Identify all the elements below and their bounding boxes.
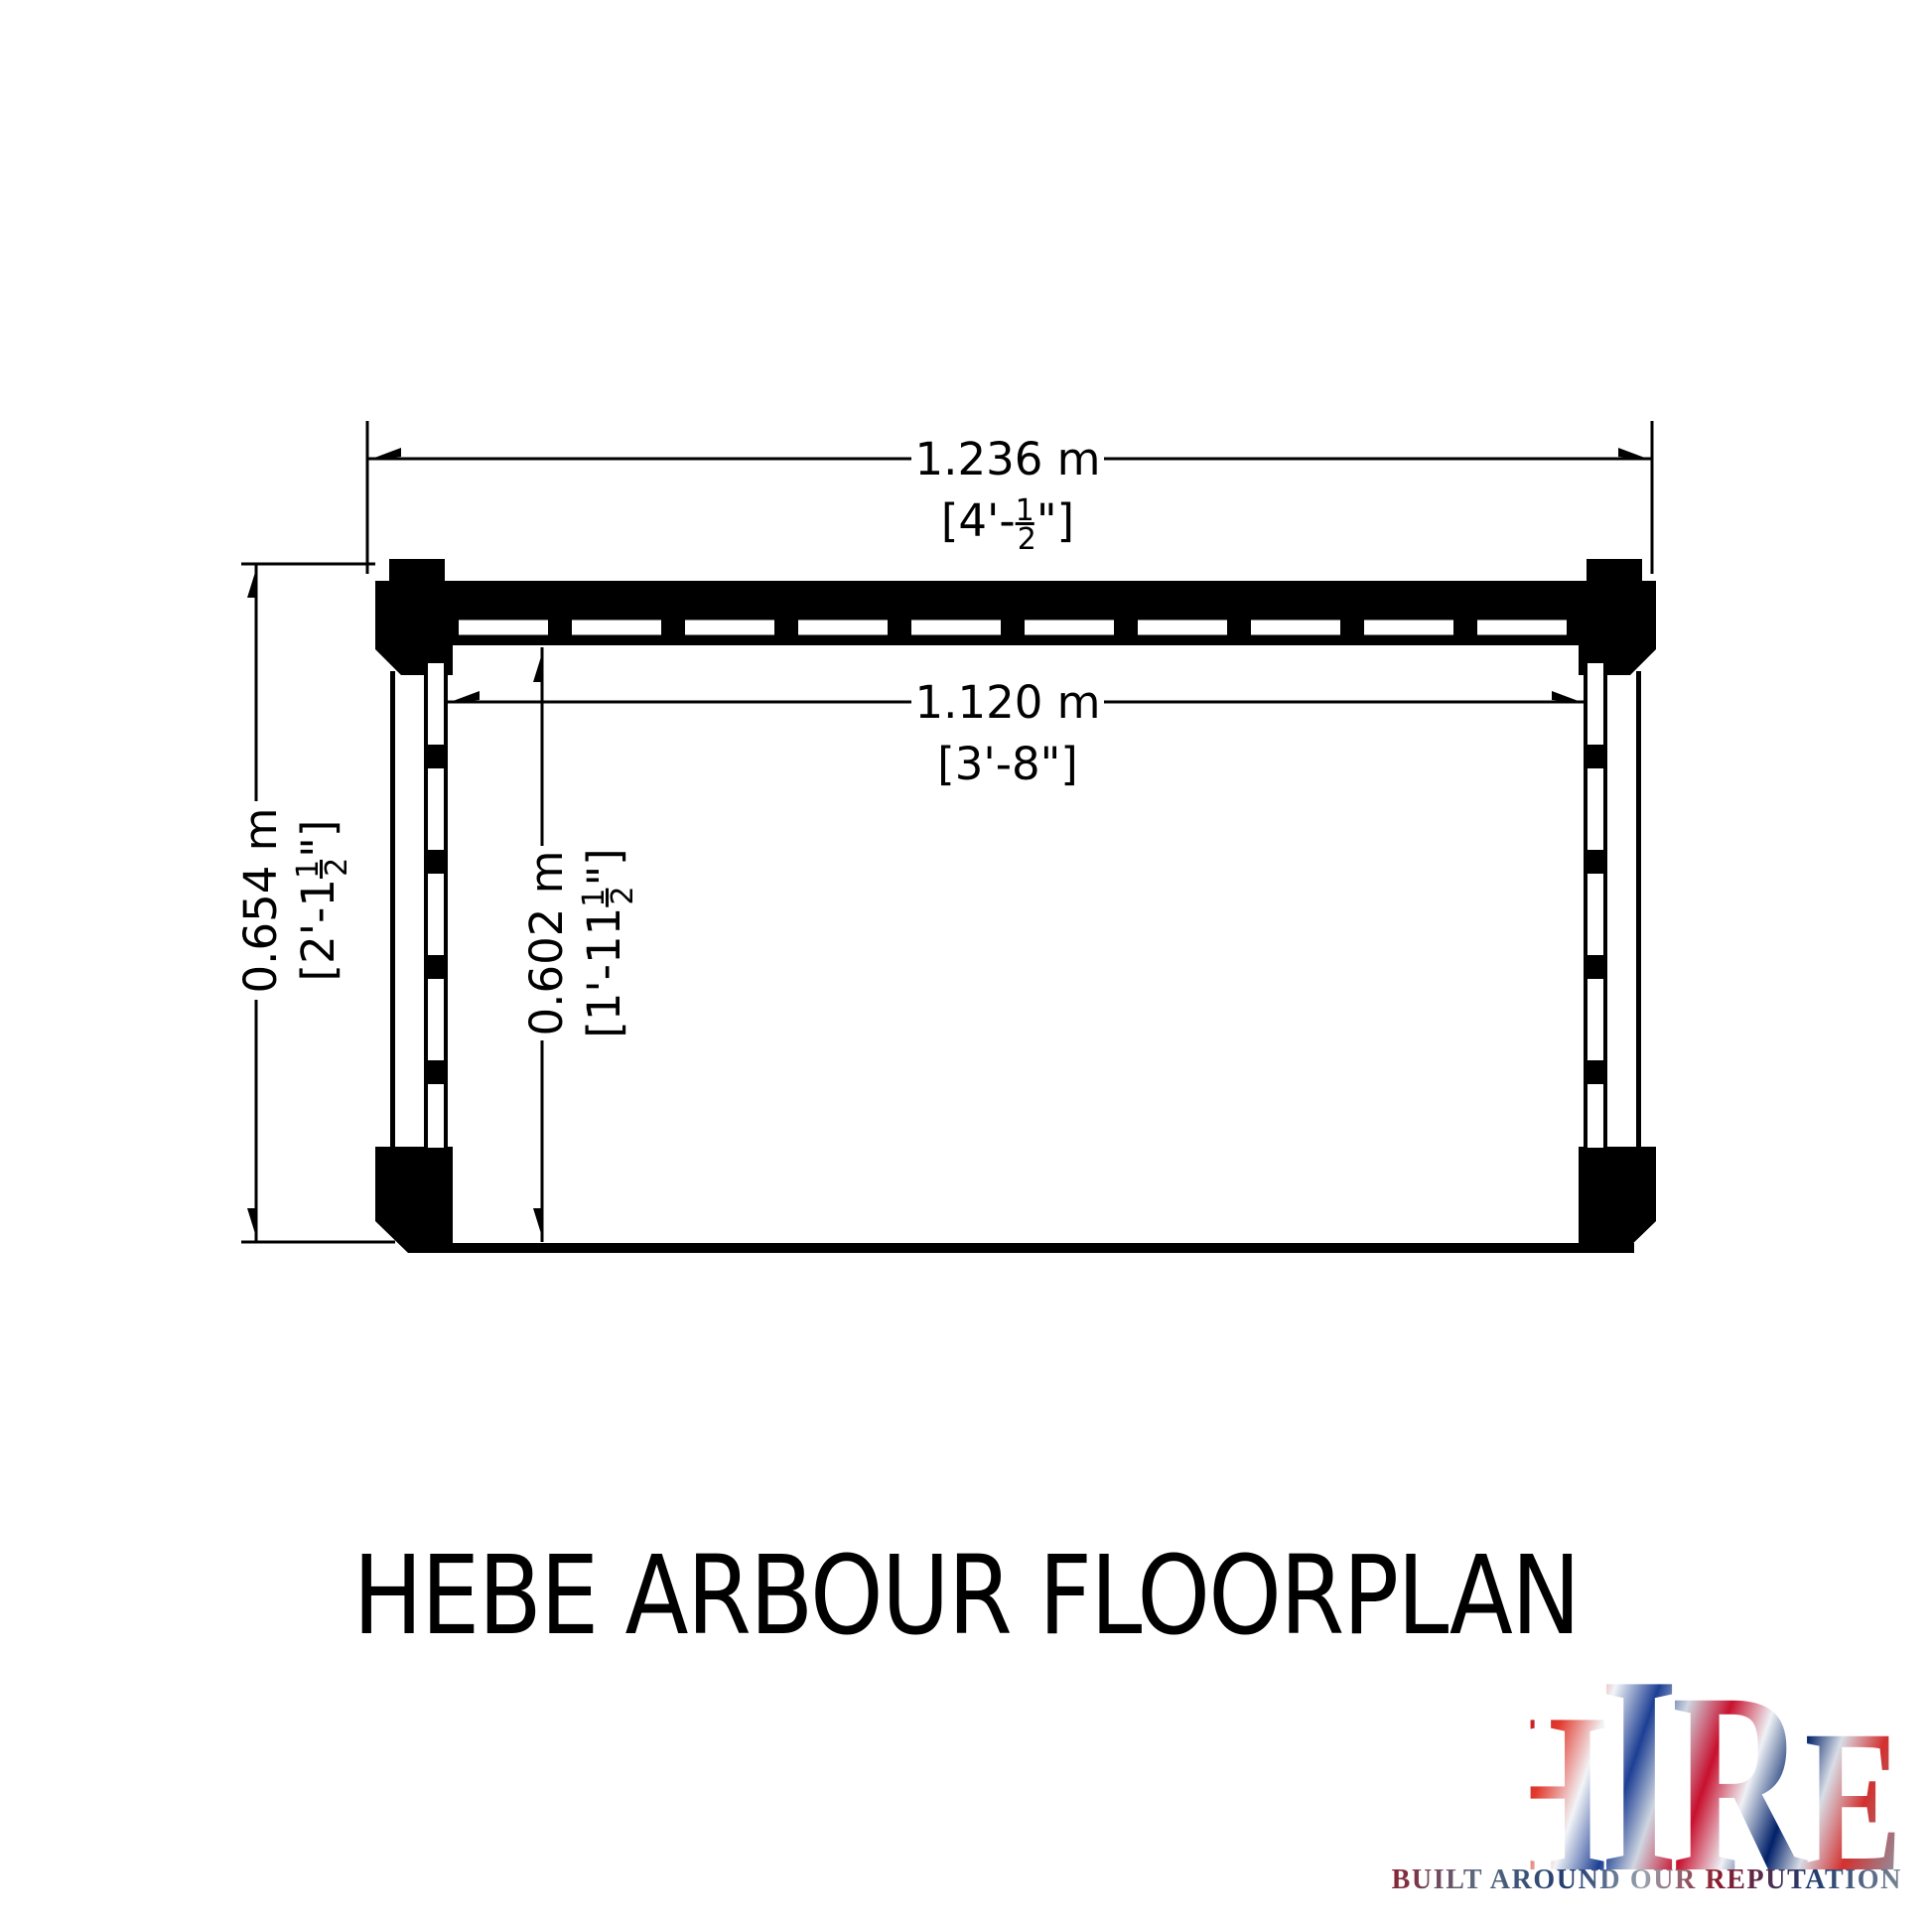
dim-inner-width: 1.120 m [3'-8"]	[446, 676, 1586, 790]
brand-letter: I	[1599, 1680, 1679, 1869]
dim-outer-depth-imperial: [2'-112"]	[291, 820, 354, 982]
shire-brand: S H I R E	[1531, 1680, 1902, 1870]
top-beam	[375, 581, 1656, 645]
dim-inner-depth: 0.602 m [1'-1112"]	[520, 647, 640, 1242]
dim-inner-depth-imperial: [1'-1112"]	[577, 848, 640, 1038]
arrowhead-down	[533, 1208, 543, 1240]
front-floor-edge	[417, 1243, 1634, 1253]
shire-logo: S H I R E BUILT AROUND OUR REPUTATION	[1386, 1680, 1902, 1896]
dim-inner-width-imperial: [3'-8"]	[937, 738, 1078, 790]
top-right-post-ear	[1587, 559, 1642, 583]
brand-letter: H	[1479, 1717, 1607, 1869]
dim-outer-width-imperial: [4'-12"]	[941, 493, 1074, 557]
brand-letter: R	[1672, 1697, 1806, 1869]
right-wall-outer-line	[1636, 671, 1641, 1154]
page-title: HEBE ARBOUR FLOORPLAN	[353, 1532, 1580, 1659]
brand-letter: E	[1805, 1733, 1902, 1869]
top-left-post-ear	[389, 559, 445, 583]
corner-post-bottom-left	[375, 1147, 453, 1253]
brand-letter: S	[1410, 1747, 1483, 1870]
arrowhead-down	[247, 1208, 257, 1240]
dim-outer-width-metric: 1.236 m	[915, 433, 1101, 485]
dim-inner-depth-metric: 0.602 m	[520, 851, 573, 1036]
dim-outer-depth-metric: 0.654 m	[234, 808, 287, 994]
dim-outer-depth: 0.654 m [2'-112"]	[234, 564, 395, 1242]
corner-post-bottom-right	[1579, 1147, 1656, 1253]
dim-inner-width-metric: 1.120 m	[915, 676, 1101, 729]
dim-outer-width: 1.236 m [4'-12"]	[367, 421, 1652, 574]
left-wall-outer-line	[390, 671, 395, 1154]
